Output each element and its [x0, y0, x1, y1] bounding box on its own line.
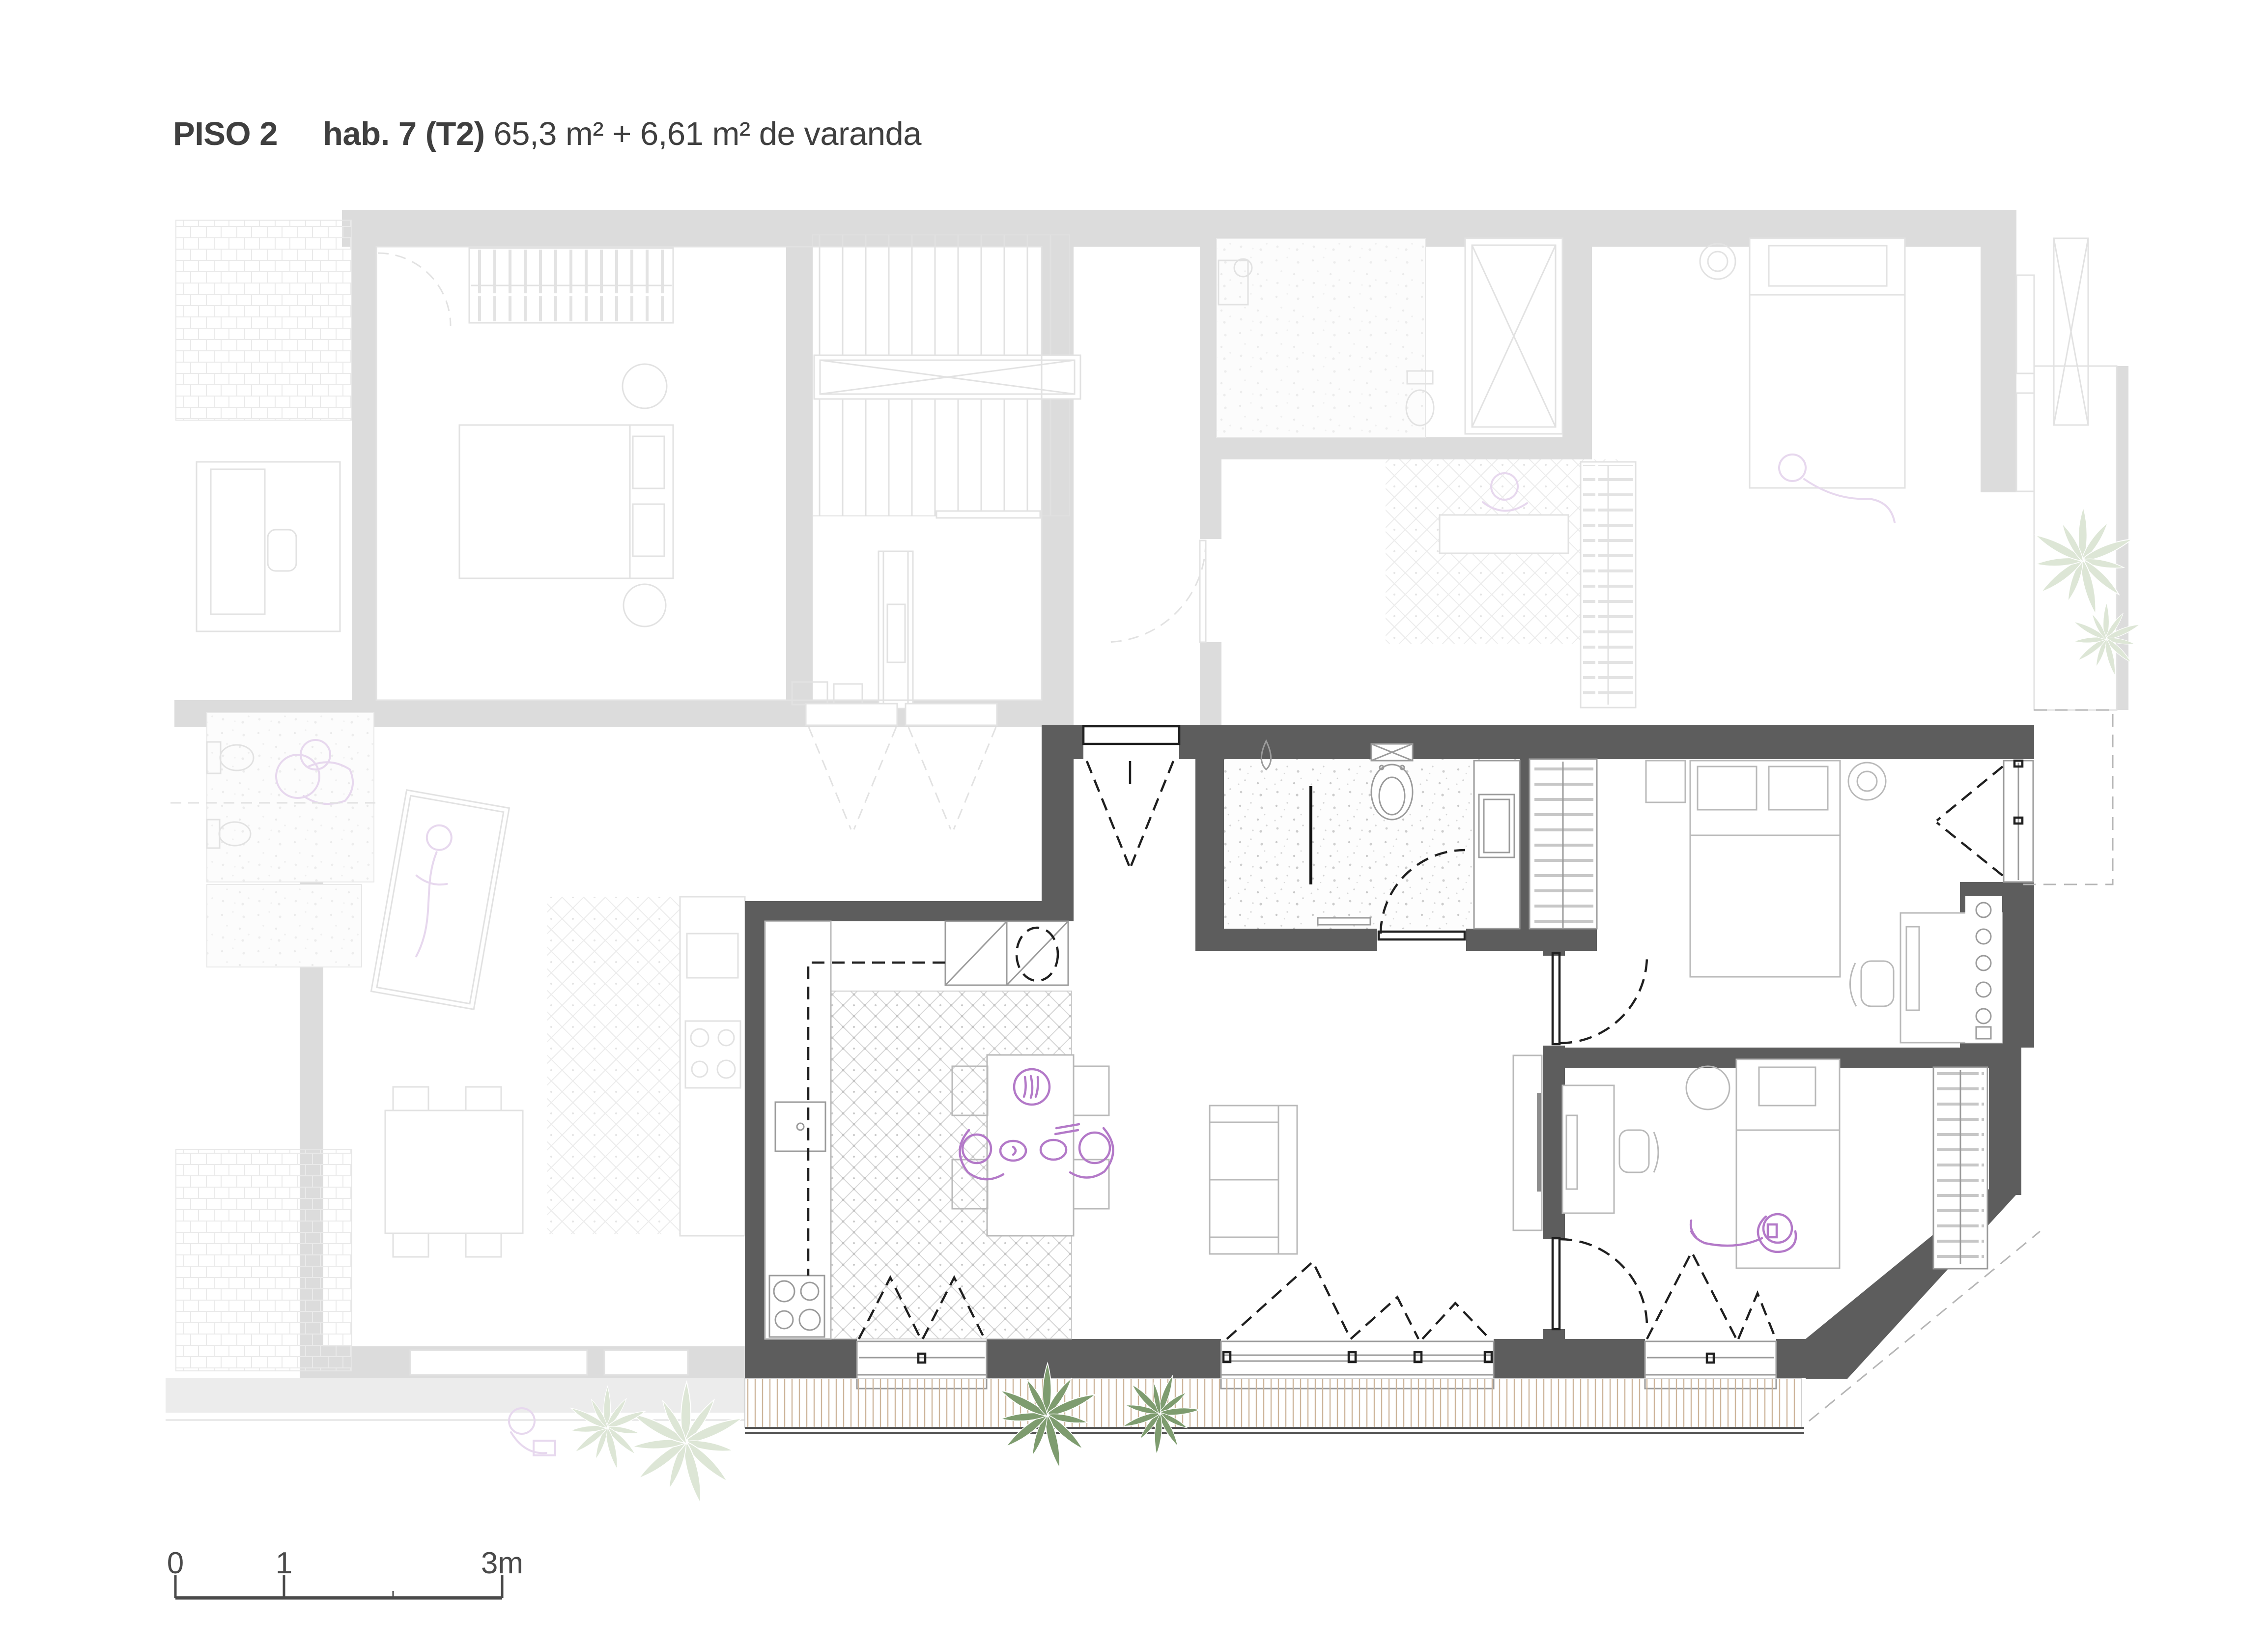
desk-2 [1562, 1085, 1658, 1213]
desk-room-faded [197, 462, 340, 631]
scale-bar [175, 1575, 502, 1598]
area-label: 65,3 m² + 6,61 m² de varanda [494, 115, 922, 152]
deck [745, 1378, 1801, 1427]
roof-hatch-lower [176, 1150, 352, 1371]
sofa [1210, 1106, 1297, 1254]
common-hall [792, 540, 1206, 829]
plant-faded-right-2 [2072, 603, 2141, 677]
window-faded-east [2016, 275, 2034, 373]
door-bedroom-2 [1553, 1238, 1647, 1329]
kitchen-counter [765, 921, 831, 1339]
apartment-left-faded [166, 712, 745, 1505]
toilet [1371, 744, 1413, 820]
floor-label: PISO 2 [173, 115, 278, 152]
scale-tick-3m: 3m [481, 1546, 523, 1581]
stool [1686, 1066, 1729, 1109]
stairwell [813, 235, 1080, 518]
window-faded-left [410, 1350, 587, 1375]
lamp-1 [1848, 763, 1886, 800]
balcony-dashed-east [2023, 710, 2113, 884]
bed-faded-topright [1750, 238, 1905, 522]
kitchen-faded [547, 897, 745, 1236]
closet-hall [1530, 759, 1597, 929]
window-south-2 [1645, 1252, 1776, 1389]
dining-faded [385, 1087, 523, 1257]
closet-faded-topright [1581, 462, 1636, 708]
wardrobe-faded [469, 248, 673, 323]
bathroom-faded-left [207, 712, 374, 967]
nightstand [1646, 761, 1685, 802]
railing [745, 1428, 1804, 1433]
entry-door [1083, 726, 1179, 866]
bathroom [1224, 741, 1520, 939]
vanity [1474, 761, 1520, 929]
roof-hatch-upper [176, 220, 352, 420]
hall-door-swing-faded [1105, 541, 1206, 642]
desk-chair-1 [1861, 961, 1894, 1006]
bed-1 [1690, 761, 1840, 977]
window-east [1937, 761, 2033, 882]
door-swing-faded [378, 253, 451, 326]
window-faded-east-2 [2016, 393, 2034, 491]
kitchen-cabinets [945, 921, 1068, 985]
bed-angled-faded [371, 790, 509, 1009]
elevator [879, 551, 913, 709]
door-bedroom-1 [1553, 953, 1647, 1044]
unit-label: hab. 7 (T2) [323, 115, 485, 152]
unit-highlighted [745, 710, 2113, 1469]
drawing-title: PISO 2hab. 7 (T2)65,3 m² + 6,61 m² de va… [173, 116, 921, 152]
reading-figure-faded [509, 1408, 555, 1455]
shelf-niche [1965, 896, 2002, 1043]
closet-2 [1933, 1067, 1987, 1269]
desk-chair-2 [1619, 1130, 1649, 1172]
bathroom-faded-topright [1217, 238, 1562, 437]
towel-rail [1318, 918, 1370, 925]
living-kitchen [765, 921, 1542, 1389]
balcony-faded-left [166, 1378, 745, 1505]
sliding-door-living [1221, 1262, 1494, 1389]
floor-plan [0, 0, 2268, 1648]
tv-unit [1513, 1055, 1542, 1230]
scale-tick-1: 1 [276, 1546, 292, 1581]
scale-tick-0: 0 [167, 1546, 184, 1581]
diner-right [1079, 1133, 1110, 1163]
window-faded-left-2 [604, 1350, 688, 1375]
bed-faded-topleft [459, 425, 673, 578]
